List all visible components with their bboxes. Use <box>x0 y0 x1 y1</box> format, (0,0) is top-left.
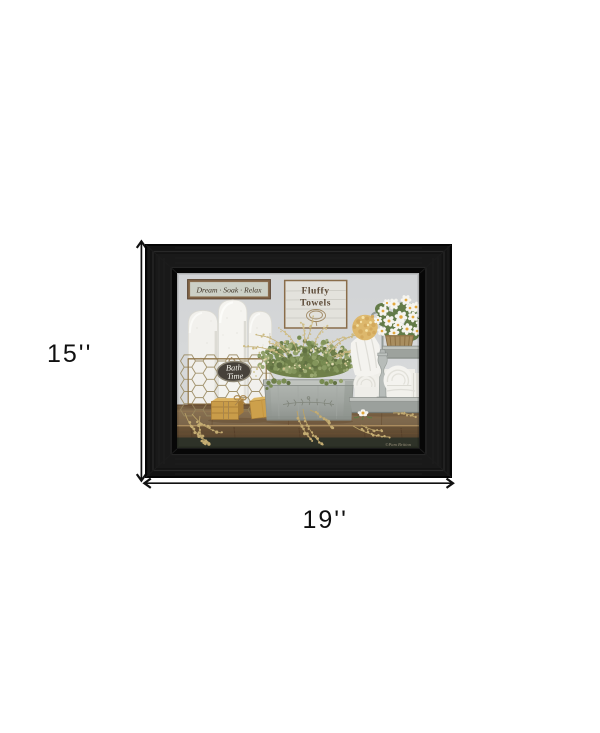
svg-text:Fluffy: Fluffy <box>301 286 329 297</box>
svg-text:Towels: Towels <box>300 298 331 309</box>
svg-text:Time: Time <box>227 371 244 381</box>
svg-text:Dream · Soak · Relax: Dream · Soak · Relax <box>195 285 262 294</box>
